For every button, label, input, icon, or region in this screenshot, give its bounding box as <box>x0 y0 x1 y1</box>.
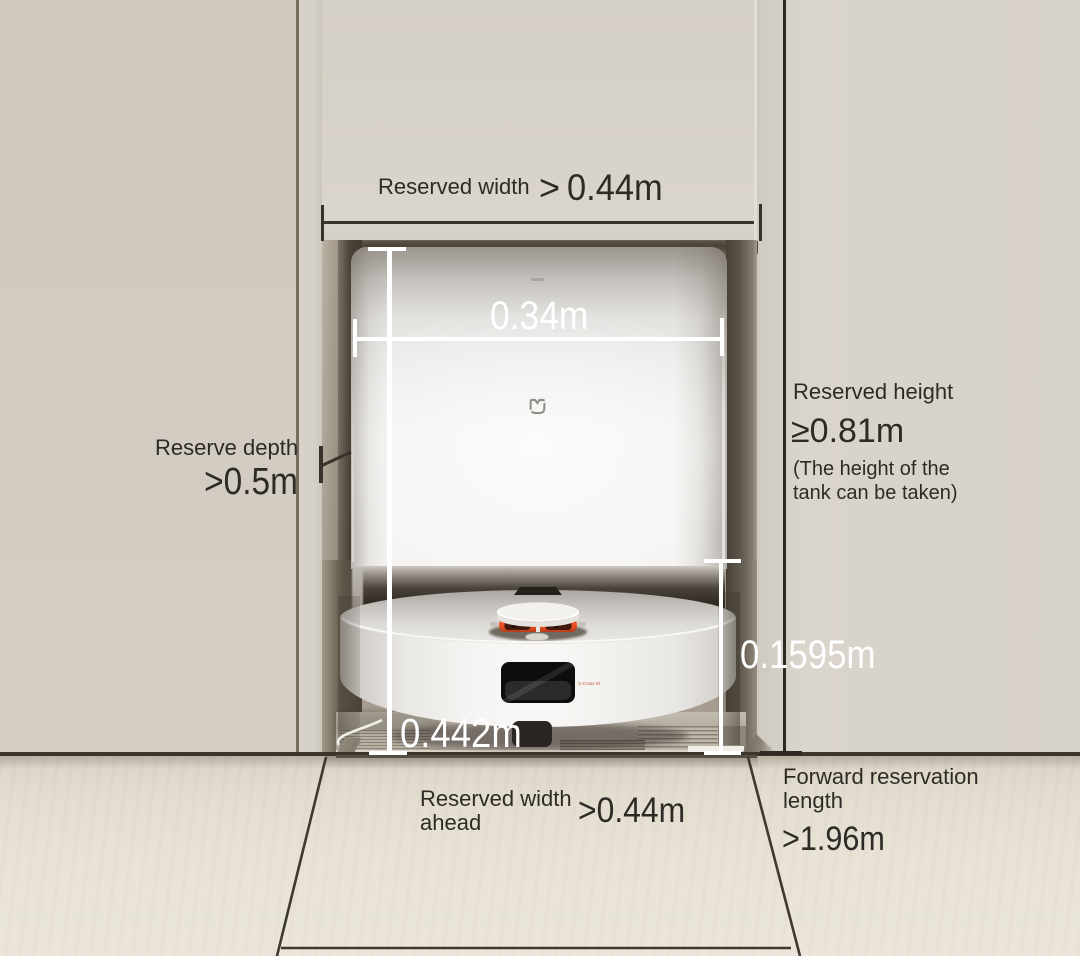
svg-text:S-Cross W: S-Cross W <box>578 681 601 686</box>
